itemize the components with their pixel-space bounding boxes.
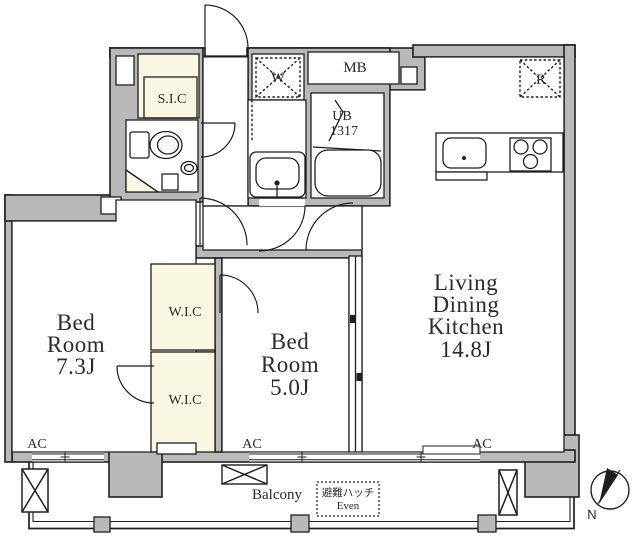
ldk-label-line3: Kitchen: [428, 314, 504, 339]
entrance-door: [205, 5, 248, 48]
toilet: [130, 132, 182, 159]
hatch-label-line2: Even: [337, 500, 360, 512]
wall-left: [5, 195, 12, 462]
mb-label: MB: [343, 60, 366, 76]
bedroom2-label-line1: Bed: [271, 329, 310, 354]
bedroom2-label-line3: 5.0J: [270, 375, 310, 400]
kitchen-sink-drain: [462, 156, 466, 160]
hatch-label-line1: 避難ハッチ: [322, 486, 375, 499]
wall-wic-bed2: [215, 258, 222, 452]
balcony-post-2: [291, 515, 309, 532]
sic-closet: [138, 54, 199, 118]
sliding-mark-2: [357, 373, 362, 381]
vanity-sink: [250, 152, 305, 197]
ldk-floor: [362, 57, 564, 452]
compass: [591, 468, 629, 509]
ac-label-3: AC: [472, 437, 491, 452]
vanity-faucet: [274, 180, 279, 185]
bathtub-body: [315, 150, 381, 196]
entry-hand-basin: [181, 162, 197, 175]
toilet-tank: [130, 132, 149, 158]
sic-label: S.I.C: [158, 92, 187, 107]
ldk-label-line4: 14.8J: [440, 337, 492, 362]
evacuation-hatch-mark: [222, 465, 267, 484]
ac-label-1: AC: [27, 437, 46, 452]
ub-label-line2: 1317: [330, 124, 358, 139]
floorplan-drawing: Bed Room 7.3J Bed Room 5.0J Living Dinin…: [0, 0, 640, 538]
hall: [203, 206, 362, 250]
wall-right: [564, 45, 575, 436]
entrance-door-swing: [205, 5, 248, 48]
wic-upper-label: W.I.C: [169, 305, 202, 320]
kitchen-counter-lip: [436, 172, 487, 180]
kitchen-sink: [443, 138, 486, 168]
floorplan-canvas: Bed Room 7.3J Bed Room 5.0J Living Dinin…: [0, 0, 640, 538]
bathtub: [313, 147, 381, 196]
wic-lower-notch: [157, 443, 196, 454]
refrigerator-label: R: [536, 72, 546, 88]
entry-niche: [116, 56, 134, 85]
wic-lower-label: W.I.C: [169, 393, 202, 408]
ac-label-2: AC: [242, 437, 261, 452]
washer-label: W: [271, 70, 286, 86]
bedroom1-label-line3: 7.3J: [56, 354, 96, 379]
sliding-mark-1: [350, 315, 355, 323]
entry-step-box: [162, 174, 178, 190]
mb-notch: [401, 67, 417, 84]
balcony-partition-left: [22, 469, 48, 512]
compass-north-label: N: [587, 507, 596, 522]
washroom-door-gap: [259, 199, 305, 206]
bedroom2-label-line2: Room: [261, 352, 319, 377]
balcony-post-3: [478, 515, 496, 532]
ub-label-line1: UB: [332, 109, 351, 124]
corridor: [203, 56, 248, 206]
balcony-partition-right: [499, 470, 517, 515]
balcony-label: Balcony: [252, 487, 302, 503]
balcony-post-1: [94, 517, 110, 532]
basin-outer: [181, 162, 197, 175]
wall-top-ldk: [413, 45, 575, 57]
